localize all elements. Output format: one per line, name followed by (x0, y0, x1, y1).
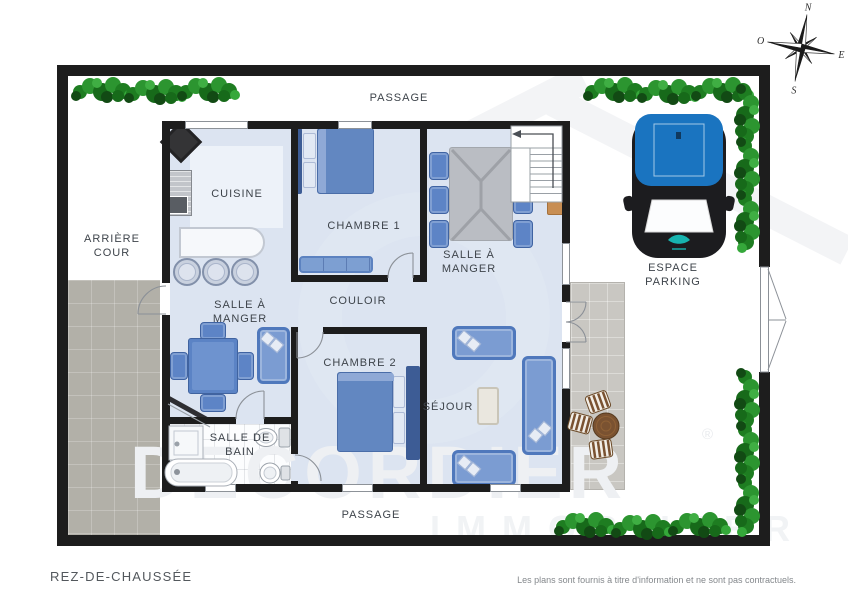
bed2-pillow (393, 412, 405, 444)
watermark-roof-right (546, 88, 848, 265)
sejour-sofa-right (522, 356, 556, 455)
window (205, 484, 236, 492)
plan-disclaimer: Les plans sont fournis à titre d'informa… (517, 575, 796, 585)
label-salle-de-bain: SALLE DE BAIN (207, 431, 273, 460)
dining-chair (429, 152, 449, 180)
wall-chambre2-left-a (291, 327, 298, 454)
wall-cuisine-chambre1 (291, 121, 298, 282)
compass-north: N (804, 3, 813, 14)
bed1-sheet-fold (318, 129, 326, 193)
dining-table (449, 147, 513, 241)
window (342, 484, 373, 492)
compass-west: O (757, 36, 764, 47)
gate (761, 267, 787, 372)
dining2-chair (200, 394, 226, 412)
compass-east: E (837, 50, 844, 61)
property-wall-top (57, 65, 770, 76)
dining-chair (513, 186, 533, 214)
car-mirror-left (622, 195, 635, 212)
window (562, 243, 570, 285)
label-passage-bottom: PASSAGE (342, 508, 401, 522)
label-salle-a-manger-bas: SALLE À MANGER (196, 298, 284, 327)
label-passage-top: PASSAGE (370, 91, 429, 105)
label-chambre2: CHAMBRE 2 (323, 356, 396, 370)
property-wall-right-lower (759, 372, 770, 546)
kitchen-counter (179, 227, 265, 258)
dining2-table (188, 338, 238, 394)
property-wall-right-upper (759, 65, 770, 267)
wall-bathroom-top-a (162, 417, 236, 424)
label-cuisine: CUISINE (211, 187, 263, 201)
terrace-door-gap (562, 302, 570, 342)
label-sejour: SÉJOUR (423, 400, 474, 414)
bed2-pillow (393, 376, 405, 408)
dining-chair (513, 152, 533, 180)
dining2-tabletop (192, 342, 234, 390)
car-brand-logo (668, 235, 690, 244)
window (338, 121, 372, 129)
dining-chair (513, 220, 533, 248)
label-salle-a-manger-haut: SALLE À MANGER (425, 248, 513, 277)
window (185, 121, 248, 129)
label-chambre1: CHAMBRE 1 (327, 219, 400, 233)
property-wall-left (57, 65, 68, 546)
window (490, 484, 521, 492)
property-wall-bottom (57, 535, 770, 546)
label-couloir: COULOIR (329, 294, 386, 308)
label-espace-parking: ESPACE PARKING (633, 261, 713, 290)
dining2-chair (236, 352, 254, 380)
dining-chair (429, 220, 449, 248)
wall-chambre1-bottom-a (291, 275, 388, 282)
bed1-pillow (303, 133, 316, 159)
fridge-compressor (168, 196, 188, 214)
watermark-registered: ® (702, 426, 713, 443)
wall-chambre2-left-b (291, 481, 298, 492)
floor-plan: DECORDIER ® IMMOBILIER (0, 0, 848, 600)
patio-door-gap (162, 283, 170, 315)
dining-chair (429, 186, 449, 214)
bed1-duvet (317, 128, 374, 194)
desk-monitor (550, 182, 563, 192)
bed2-duvet (337, 372, 393, 452)
window (562, 348, 570, 389)
car-windshield (645, 200, 713, 232)
wall-bathroom-top-b (264, 417, 298, 424)
dining2-chair (170, 352, 188, 380)
compass-south: S (791, 85, 796, 96)
bed1-pillow (303, 162, 316, 188)
floor-title: REZ-DE-CHAUSSÉE (50, 569, 192, 584)
wall-chambre2-top-b (323, 327, 427, 334)
bedroom1-bench (299, 256, 373, 273)
bed2-headboard (406, 366, 420, 460)
bed2-sheet-fold (338, 373, 394, 381)
label-arriere-cour: ARRIÈRE COUR (67, 232, 157, 261)
ottoman (477, 387, 499, 425)
